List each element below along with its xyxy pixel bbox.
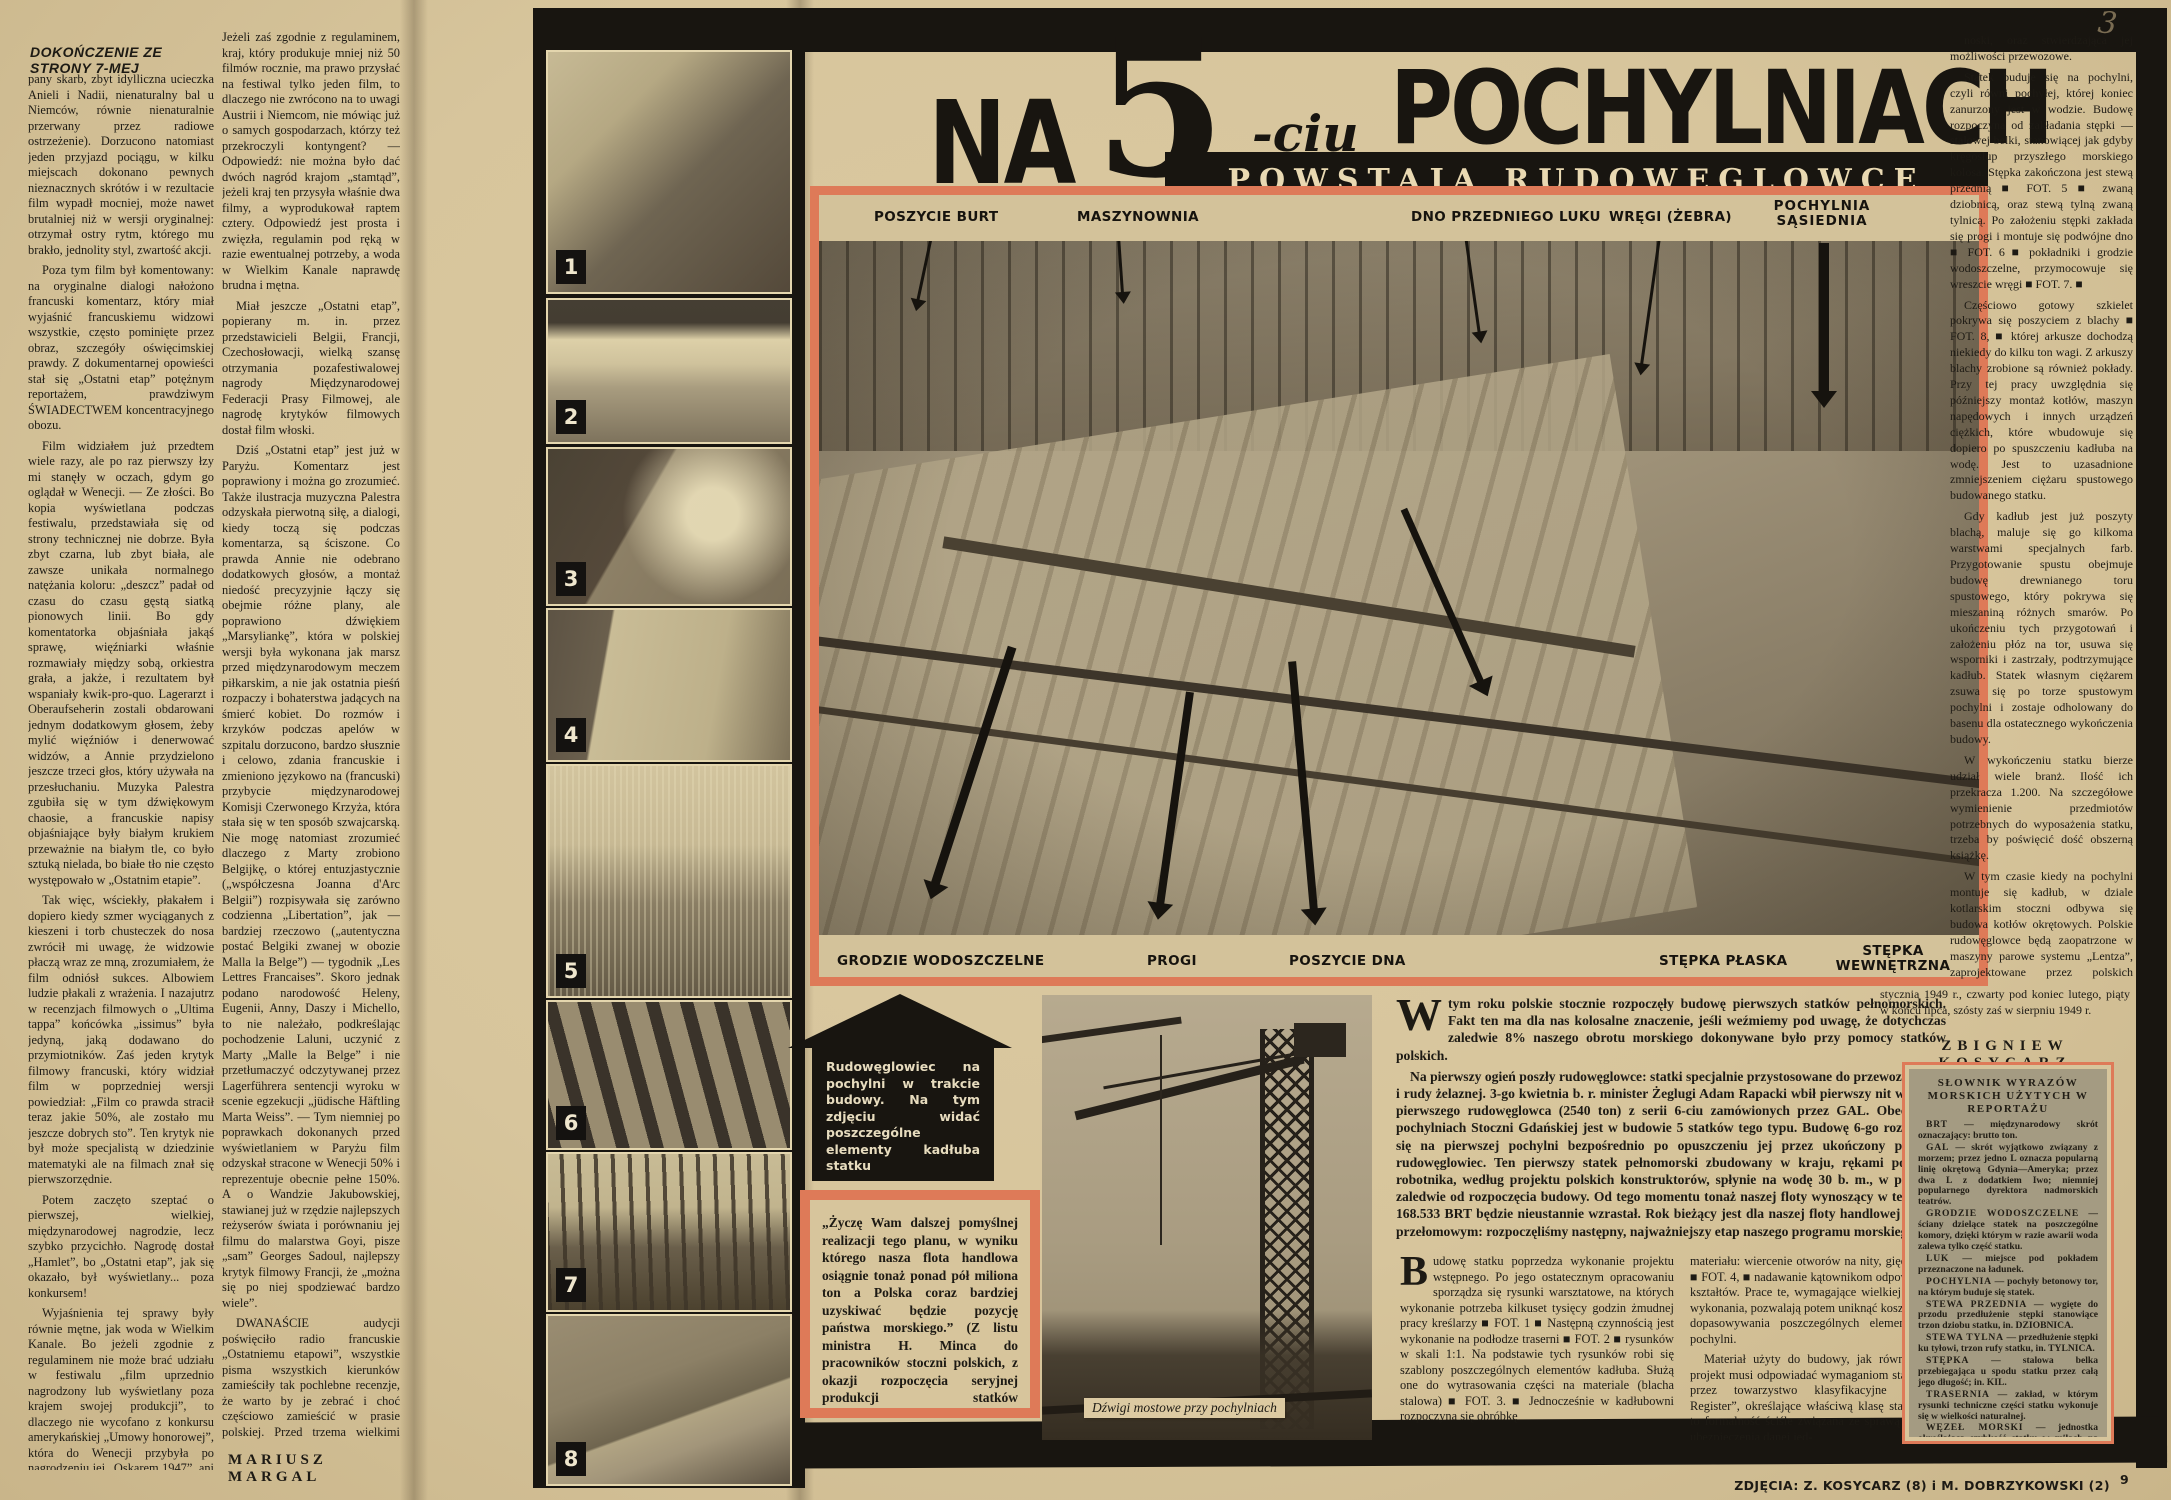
crane-cable bbox=[1160, 1035, 1162, 1245]
author-signature-margal: MARIUSZ MARGAL bbox=[228, 1452, 408, 1486]
photo-6-frame-fitting: 6 bbox=[548, 1002, 790, 1148]
label-wregi-zebra: WRĘGI (ŻEBRA) bbox=[1609, 209, 1732, 225]
crane-cab bbox=[1294, 1023, 1346, 1057]
photo-number-4: 4 bbox=[556, 718, 586, 752]
page-number: 9 bbox=[2120, 1472, 2129, 1487]
label-grodzie-wodoszczelne: GRODZIE WODOSZCZELNE bbox=[837, 953, 1045, 969]
photo-number-7: 7 bbox=[556, 1268, 586, 1302]
photo-number-6: 6 bbox=[556, 1106, 586, 1140]
crane-caption: Dźwigi mostowe przy pochylniach bbox=[1084, 1398, 1285, 1418]
dictionary-box: SŁOWNIK WYRAZÓW MORSKICH UŻYTYCH W REPOR… bbox=[1902, 1062, 2114, 1444]
photo-number-2: 2 bbox=[556, 400, 586, 434]
photo-3-welder: 3 bbox=[548, 449, 790, 604]
diagram-frame: POSZYCIE BURT MASZYNOWNIA DNO PRZEDNIEGO… bbox=[810, 186, 1988, 986]
photo-vignette bbox=[819, 241, 1979, 935]
photo-5-launch-crowd: 5 bbox=[548, 766, 790, 996]
label-poszycie-dna: POSZYCIE DNA bbox=[1289, 953, 1406, 969]
magazine-spread: 3 DOKOŃCZENIE ZE STRONY 7-MEJ pany skarb… bbox=[0, 0, 2171, 1500]
build-column-a: Budowę statku poprzedza wykonanie projek… bbox=[1400, 1254, 1674, 1440]
article-column-right-tail: stycznia 1949 r., czwarty pod koniec lut… bbox=[1880, 986, 2130, 1036]
label-progi: PROGI bbox=[1147, 953, 1197, 969]
crane-photo-foreground bbox=[1042, 1310, 1372, 1440]
up-arrow-head bbox=[788, 994, 1012, 1048]
dictionary-entries: BRT — międzynarodowy skrót oznaczający: … bbox=[1918, 1120, 2098, 1437]
label-dno-przedniego-luku: DNO PRZEDNIEGO LUKU bbox=[1411, 209, 1601, 225]
dictionary-title: SŁOWNIK WYRAZÓW MORSKICH UŻYTYCH W REPOR… bbox=[1918, 1077, 2098, 1116]
photo-number-5: 5 bbox=[556, 954, 586, 988]
article-column-2: Jeżeli zaś zgodnie z regulaminem, kraj, … bbox=[222, 30, 400, 1442]
article-column-1: pany skarb, zbyt idylliczna ucieczka Ani… bbox=[28, 72, 214, 1470]
pointer-arrow-pochylnia-sasiednia bbox=[1819, 243, 1829, 393]
photo-strip: 1 2 3 4 5 6 7 8 bbox=[533, 8, 805, 1488]
minister-quote-box: „Życzę Wam dalszej pomyślnej realizacji … bbox=[800, 1190, 1040, 1418]
photo-credits: ZDJĘCIA: Z. KOSYCARZ (8) i M. DOBRZYKOWS… bbox=[1700, 1478, 2110, 1493]
dictionary-content: SŁOWNIK WYRAZÓW MORSKICH UŻYTYCH W REPOR… bbox=[1909, 1069, 2107, 1437]
right-rule-bar bbox=[2136, 8, 2167, 1468]
label-pochylnia-sasiednia: POCHYLNIA SĄSIEDNIA bbox=[1757, 199, 1887, 229]
diagram-photo-slipway bbox=[819, 241, 1979, 935]
photo-8-shipyard-basin: 8 bbox=[548, 1316, 790, 1484]
page-fold-crease bbox=[400, 0, 428, 1500]
photo-4-steel-plates: 4 bbox=[548, 610, 790, 760]
photo-number-3: 3 bbox=[556, 562, 586, 596]
photo-2-tracing-hall: 2 bbox=[548, 300, 790, 442]
photo-1-draftsman: 1 bbox=[548, 52, 790, 292]
label-maszynownia: MASZYNOWNIA bbox=[1077, 209, 1199, 225]
photo-number-1: 1 bbox=[556, 250, 586, 284]
label-poszycie-burt: POSZYCIE BURT bbox=[874, 209, 998, 225]
photo-number-8: 8 bbox=[556, 1442, 586, 1476]
intro-paragraph: W tym roku polskie stocznie rozpoczęły b… bbox=[1396, 995, 1946, 1247]
crane-photo: Dźwigi mostowe przy pochylniach bbox=[1042, 995, 1372, 1440]
label-stepka-wewnetrzna: STĘPKA WEWNĘTRZNA bbox=[1823, 944, 1963, 974]
up-arrow-caption: Rudowęglowiec na pochylni w trakcie budo… bbox=[812, 1047, 994, 1181]
article-column-right: noski, oraz stwierdzająca jej możliwości… bbox=[1950, 33, 2133, 983]
photo-7-hull-skeleton: 7 bbox=[548, 1154, 790, 1310]
label-stepka-plaska: STĘPKA PŁASKA bbox=[1659, 953, 1788, 969]
